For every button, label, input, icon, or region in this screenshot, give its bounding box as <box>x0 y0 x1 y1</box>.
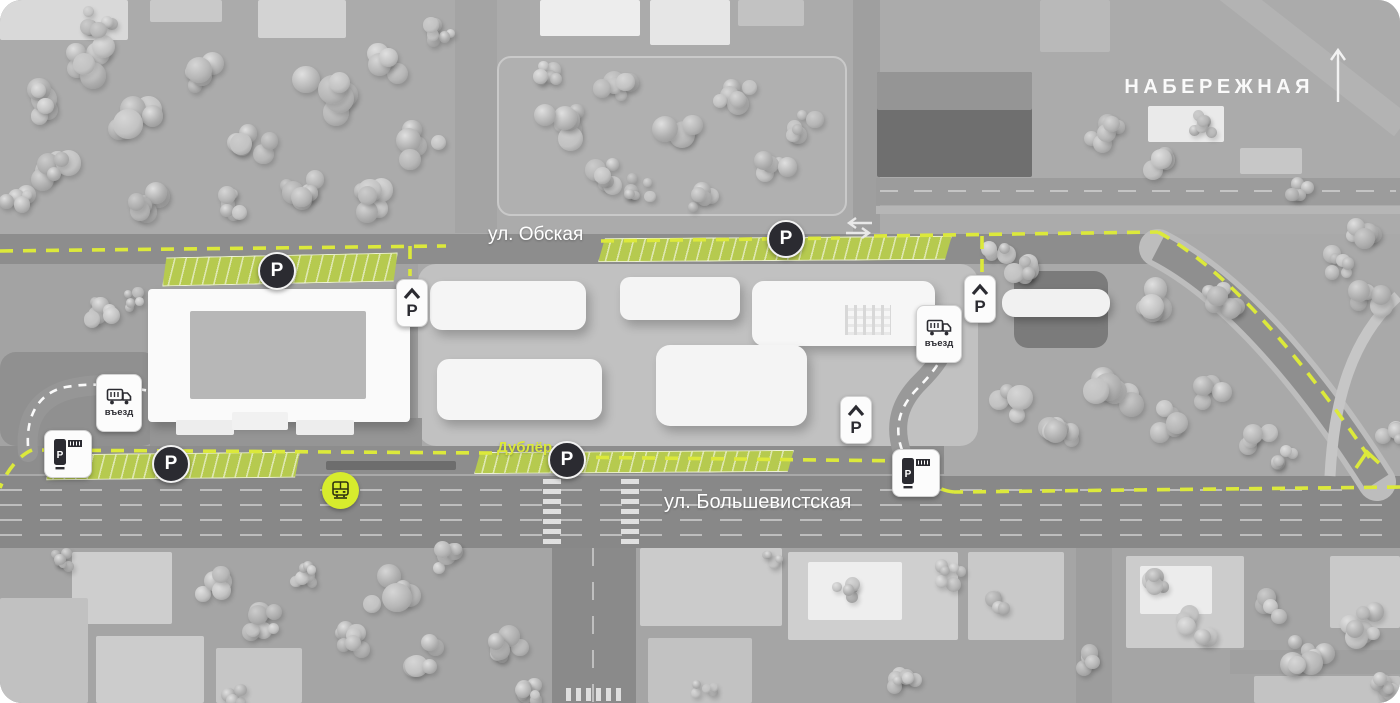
tree-cluster <box>186 57 212 83</box>
tree-cluster <box>702 684 711 693</box>
tree-cluster <box>268 623 279 634</box>
tree-cluster <box>792 124 803 135</box>
tree-cluster <box>1346 620 1364 638</box>
tree-cluster <box>893 676 902 685</box>
tree-cluster <box>1342 257 1354 269</box>
building <box>968 552 1064 640</box>
lane-marking <box>0 519 1400 521</box>
tree-cluster <box>261 132 279 150</box>
building <box>190 311 366 399</box>
parking-meter-sign[interactable]: P <box>44 430 92 478</box>
tree-cluster <box>999 243 1010 254</box>
building <box>232 412 288 430</box>
crosswalk <box>566 688 624 701</box>
tree-cluster <box>1166 412 1189 435</box>
street-label-obskaya: ул. Обская <box>488 224 583 246</box>
cross-street-road <box>552 548 636 703</box>
building <box>326 461 456 470</box>
building <box>620 277 740 320</box>
tree-cluster <box>382 583 411 612</box>
tree-cluster <box>84 311 101 328</box>
tree-cluster <box>230 133 252 155</box>
tree-cluster <box>1285 188 1298 201</box>
tree-cluster <box>266 604 282 620</box>
building <box>296 420 354 435</box>
tree-cluster <box>142 105 163 126</box>
svg-text:P: P <box>57 450 64 461</box>
ground-patch <box>1076 548 1112 703</box>
building <box>96 636 204 703</box>
tree-cluster <box>691 688 701 698</box>
tree-cluster <box>37 98 54 115</box>
tree-cluster <box>1022 267 1035 280</box>
street-label-bolshevistskaya: ул. Большевистская <box>664 491 851 514</box>
svg-text:P: P <box>905 469 912 480</box>
ground-patch <box>455 0 497 233</box>
tree-cluster <box>421 634 438 651</box>
tree-cluster <box>1194 629 1211 646</box>
tree-cluster <box>1394 434 1400 444</box>
tree-cluster <box>212 566 229 583</box>
underground-parking-sign[interactable]: P <box>396 279 428 327</box>
crosswalk <box>621 479 639 545</box>
tree-cluster <box>1193 376 1213 396</box>
tram-icon <box>330 480 351 501</box>
tree-cluster <box>1325 265 1340 280</box>
tree-cluster <box>232 205 247 220</box>
tree-cluster <box>248 605 268 625</box>
route-direction-arrow <box>1356 452 1379 468</box>
building <box>0 598 88 703</box>
truck-entrance-sign[interactable]: въезд <box>916 305 962 363</box>
tree-cluster <box>775 555 783 563</box>
tree-cluster <box>1243 424 1263 444</box>
tree-cluster <box>292 66 320 94</box>
underground-parking-sign[interactable]: P <box>840 396 872 444</box>
tree-cluster <box>742 80 757 95</box>
tree-cluster <box>236 697 246 703</box>
tree-cluster <box>1083 378 1109 404</box>
tree-cluster <box>627 173 638 184</box>
tree-cluster <box>515 682 531 698</box>
north-arrow-icon <box>1328 42 1348 106</box>
embankment-label: НАБЕРЕЖНАЯ <box>1124 50 1314 99</box>
tree-cluster <box>1007 385 1033 411</box>
tree-cluster <box>1383 684 1393 694</box>
tree-cluster <box>1019 256 1030 267</box>
tree-cluster <box>0 194 14 208</box>
tree-cluster <box>981 241 997 257</box>
building <box>738 0 804 26</box>
tree-cluster <box>1371 285 1391 305</box>
parking-p-badge[interactable]: P <box>767 220 805 258</box>
building <box>1002 289 1110 317</box>
parking-meter-sign[interactable]: P <box>892 449 940 497</box>
parking-p-badge[interactable]: P <box>548 441 586 479</box>
truck-icon <box>926 319 953 337</box>
tree-cluster <box>1197 115 1209 127</box>
tree-cluster <box>90 22 107 39</box>
parking-letter: P <box>850 419 861 436</box>
lane-marking <box>592 548 594 703</box>
building <box>877 72 1032 110</box>
tree-cluster <box>113 109 143 139</box>
entrance-label: въезд <box>925 338 954 349</box>
tree-cluster <box>1271 609 1287 625</box>
truck-icon <box>106 388 133 406</box>
building <box>437 359 602 420</box>
tree-cluster <box>291 187 311 207</box>
chevron-up-icon <box>846 404 866 417</box>
tree-cluster <box>682 115 703 136</box>
parking-meter-icon: P <box>899 455 933 491</box>
parking-letter: P <box>406 302 417 319</box>
tree-cluster <box>345 635 361 651</box>
building <box>430 281 586 330</box>
building <box>650 0 730 45</box>
tree-cluster <box>1148 570 1159 581</box>
embankment-direction: НАБЕРЕЖНАЯ <box>1124 42 1348 106</box>
tree-cluster <box>1373 672 1387 686</box>
tree-cluster <box>1151 149 1171 169</box>
building <box>176 420 234 435</box>
chevron-up-icon <box>402 287 422 300</box>
building <box>150 0 222 22</box>
tree-cluster <box>593 79 612 98</box>
tree-cluster <box>212 581 231 600</box>
crosswalk <box>543 479 561 545</box>
underground-parking-sign[interactable]: P <box>964 275 996 323</box>
tree-cluster <box>616 73 635 92</box>
tree-cluster <box>691 187 706 202</box>
tree-cluster <box>729 91 746 108</box>
tree-cluster <box>1139 294 1164 319</box>
tram-stop-marker[interactable] <box>322 472 359 509</box>
tree-cluster <box>126 298 136 308</box>
ground-patch <box>880 190 1396 192</box>
tree-cluster <box>530 690 540 700</box>
building <box>845 305 891 335</box>
building <box>656 345 807 426</box>
tree-cluster <box>54 554 66 566</box>
tree-cluster <box>31 83 46 98</box>
parking-letter: P <box>974 298 985 315</box>
two-way-arrows-icon <box>838 214 880 247</box>
tree-cluster <box>1085 655 1099 669</box>
tree-cluster <box>488 633 505 650</box>
tree-cluster <box>423 17 439 33</box>
chevron-up-icon <box>970 283 990 296</box>
tree-cluster <box>1354 228 1375 249</box>
building <box>1240 148 1302 174</box>
tree-cluster <box>356 201 378 223</box>
building <box>640 548 782 626</box>
tree-cluster <box>534 104 556 126</box>
ground-patch <box>876 206 1400 214</box>
tree-cluster <box>533 69 548 84</box>
parking-meter-icon: P <box>51 436 85 472</box>
tree-cluster <box>644 191 655 202</box>
building <box>540 0 640 36</box>
tree-cluster <box>73 53 95 75</box>
parking-p-badge[interactable]: P <box>152 445 190 483</box>
tree-cluster <box>832 582 842 592</box>
tree-cluster <box>135 297 144 306</box>
building <box>752 281 935 346</box>
tree-cluster <box>234 684 247 697</box>
tree-cluster <box>128 193 145 210</box>
tree-cluster <box>307 565 316 574</box>
street-label-dubler: Дублёр <box>497 439 552 456</box>
tree-cluster <box>949 563 959 573</box>
tree-cluster <box>624 189 634 199</box>
tree-cluster <box>439 31 450 42</box>
building <box>258 0 346 38</box>
tree-cluster <box>1207 286 1228 307</box>
tree-cluster <box>1212 382 1232 402</box>
truck-entrance-sign[interactable]: въезд <box>96 374 142 432</box>
site-plan-map: ул. Обская Дублёр ул. Большевистская НАБ… <box>0 0 1400 703</box>
tree-cluster <box>713 94 727 108</box>
parking-p-badge[interactable]: P <box>258 252 296 290</box>
tree-cluster <box>358 186 377 205</box>
tree-cluster <box>594 167 611 184</box>
tree-cluster <box>806 111 824 129</box>
entrance-label: въезд <box>105 407 134 418</box>
tree-cluster <box>902 672 914 684</box>
building <box>1040 0 1110 52</box>
tree-cluster <box>54 152 68 166</box>
lane-marking <box>0 534 1400 536</box>
